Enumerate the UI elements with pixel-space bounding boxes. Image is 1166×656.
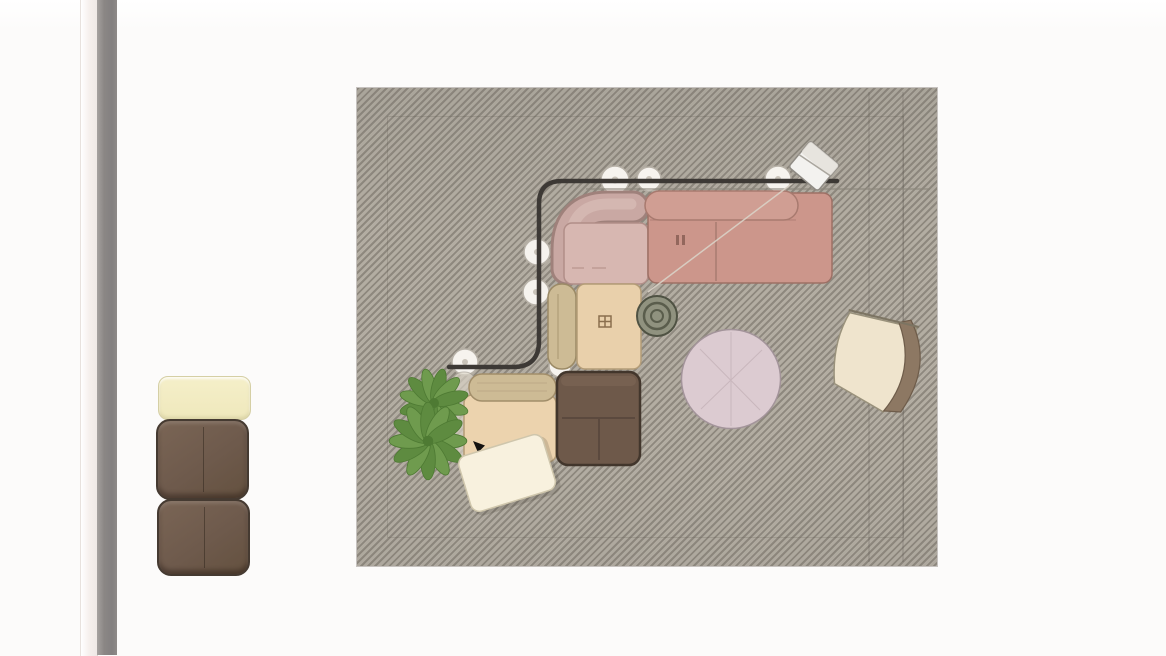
cube-table-white[interactable] xyxy=(789,141,840,191)
armchair-backrest-pill xyxy=(469,374,556,401)
round-rug-pink[interactable] xyxy=(682,330,781,429)
salmon-backrest-pill xyxy=(645,191,798,220)
seat-cushion-beige[interactable] xyxy=(577,284,641,369)
furniture-layer xyxy=(0,0,1166,656)
cushion-highlight xyxy=(561,376,636,386)
seat-cushion-pink[interactable] xyxy=(564,223,648,284)
lounge-chair[interactable] xyxy=(817,295,939,419)
khaki-backrest-pill[interactable] xyxy=(548,284,576,369)
caster-icon xyxy=(452,349,478,375)
sofa-section-salmon[interactable] xyxy=(645,191,832,283)
viewport xyxy=(0,0,1166,656)
ottoman-brown[interactable] xyxy=(557,372,640,465)
caster-icon xyxy=(523,279,549,305)
spiral-trivet[interactable] xyxy=(637,296,677,336)
